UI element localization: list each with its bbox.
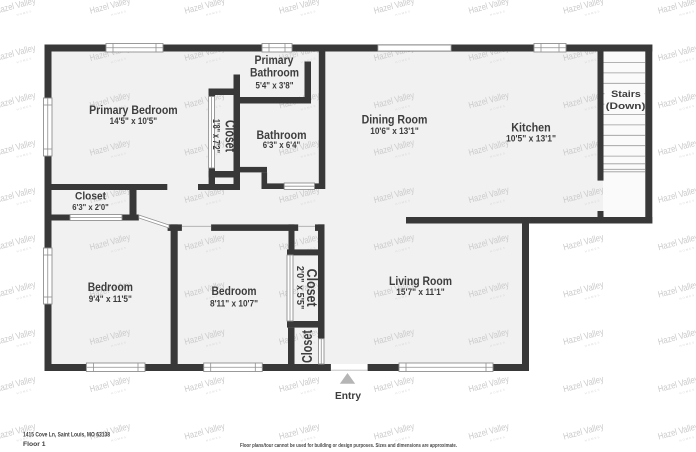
svg-text:Closet: Closet [75, 191, 106, 203]
svg-text:Bedroom: Bedroom [88, 280, 133, 294]
svg-text:10'5" x 13'1": 10'5" x 13'1" [506, 134, 556, 144]
svg-text:Floor 1: Floor 1 [23, 441, 46, 448]
svg-text:Floor plans/tour cannot be use: Floor plans/tour cannot be used for buil… [240, 443, 458, 449]
svg-text:1415 Cove Ln, Saint Louis, MO: 1415 Cove Ln, Saint Louis, MO 63138 [23, 432, 110, 439]
svg-text:6'3" x 6'4": 6'3" x 6'4" [263, 140, 300, 150]
svg-text:10'6" x 13'1": 10'6" x 13'1" [370, 126, 419, 136]
svg-text:Bedroom: Bedroom [212, 284, 257, 298]
svg-text:6'3" x 2'0": 6'3" x 2'0" [72, 203, 109, 212]
svg-text:Primary Bedroom: Primary Bedroom [89, 103, 178, 117]
svg-text:Dining Room: Dining Room [362, 113, 428, 127]
svg-text:(Down): (Down) [606, 101, 646, 112]
svg-text:Stairs: Stairs [611, 89, 641, 100]
svg-text:Kitchen: Kitchen [511, 121, 551, 135]
svg-text:14'5" x 10'5": 14'5" x 10'5" [110, 116, 158, 126]
svg-text:9'4" x 11'5": 9'4" x 11'5" [89, 294, 132, 304]
svg-text:Closet: Closet [221, 120, 237, 152]
svg-text:5'4" x 3'8": 5'4" x 3'8" [256, 81, 294, 91]
svg-text:1'8" x 7'2": 1'8" x 7'2" [210, 119, 222, 153]
svg-text:8'11" x 10'7": 8'11" x 10'7" [210, 298, 258, 308]
svg-text:2'0" x 5'5": 2'0" x 5'5" [294, 266, 306, 310]
svg-text:Closet: Closet [300, 330, 316, 363]
svg-text:15'7" x 11'1": 15'7" x 11'1" [396, 287, 445, 297]
svg-text:Bathroom: Bathroom [250, 66, 299, 80]
svg-text:Entry: Entry [335, 391, 361, 402]
svg-text:Living Room: Living Room [389, 274, 452, 288]
